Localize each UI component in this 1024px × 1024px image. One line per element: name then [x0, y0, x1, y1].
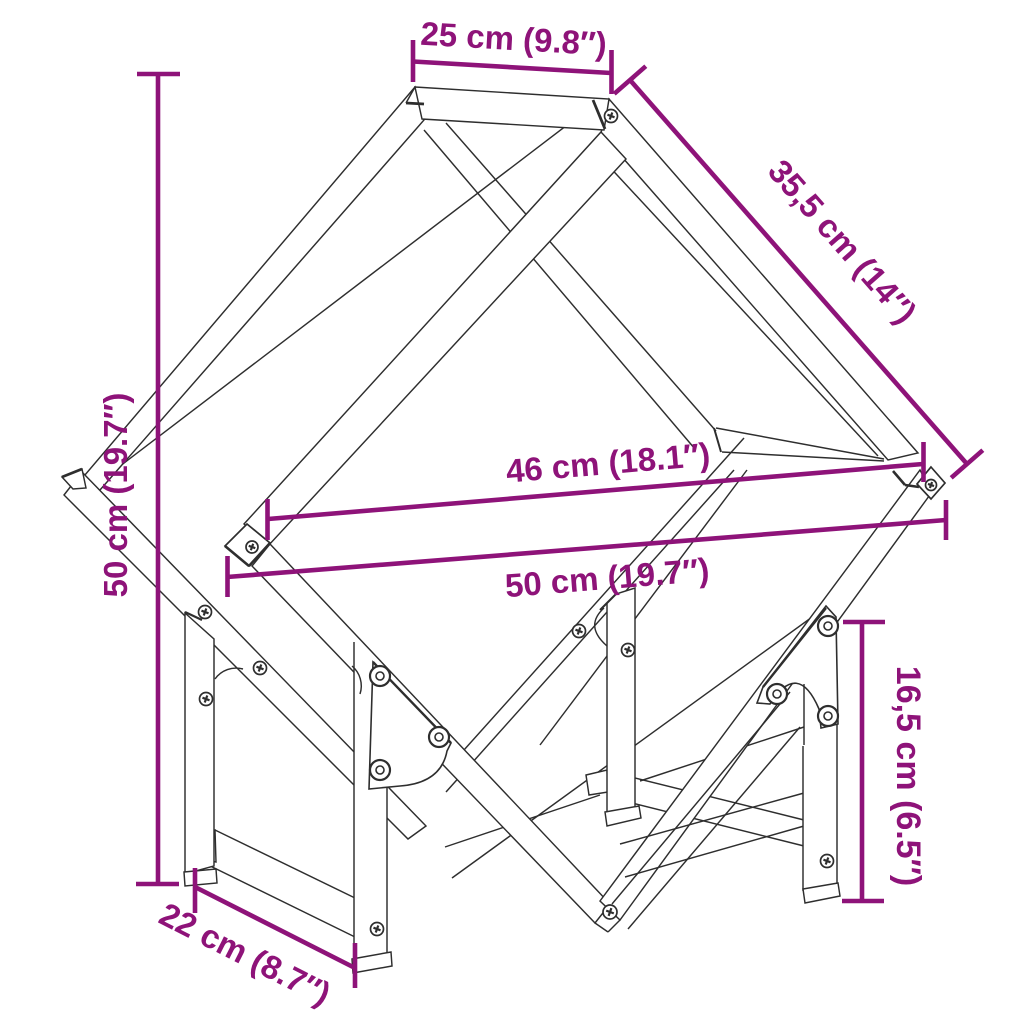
svg-text:16,5 cm (6.5″): 16,5 cm (6.5″): [889, 666, 927, 886]
svg-text:50 cm (19.7″): 50 cm (19.7″): [97, 393, 134, 598]
